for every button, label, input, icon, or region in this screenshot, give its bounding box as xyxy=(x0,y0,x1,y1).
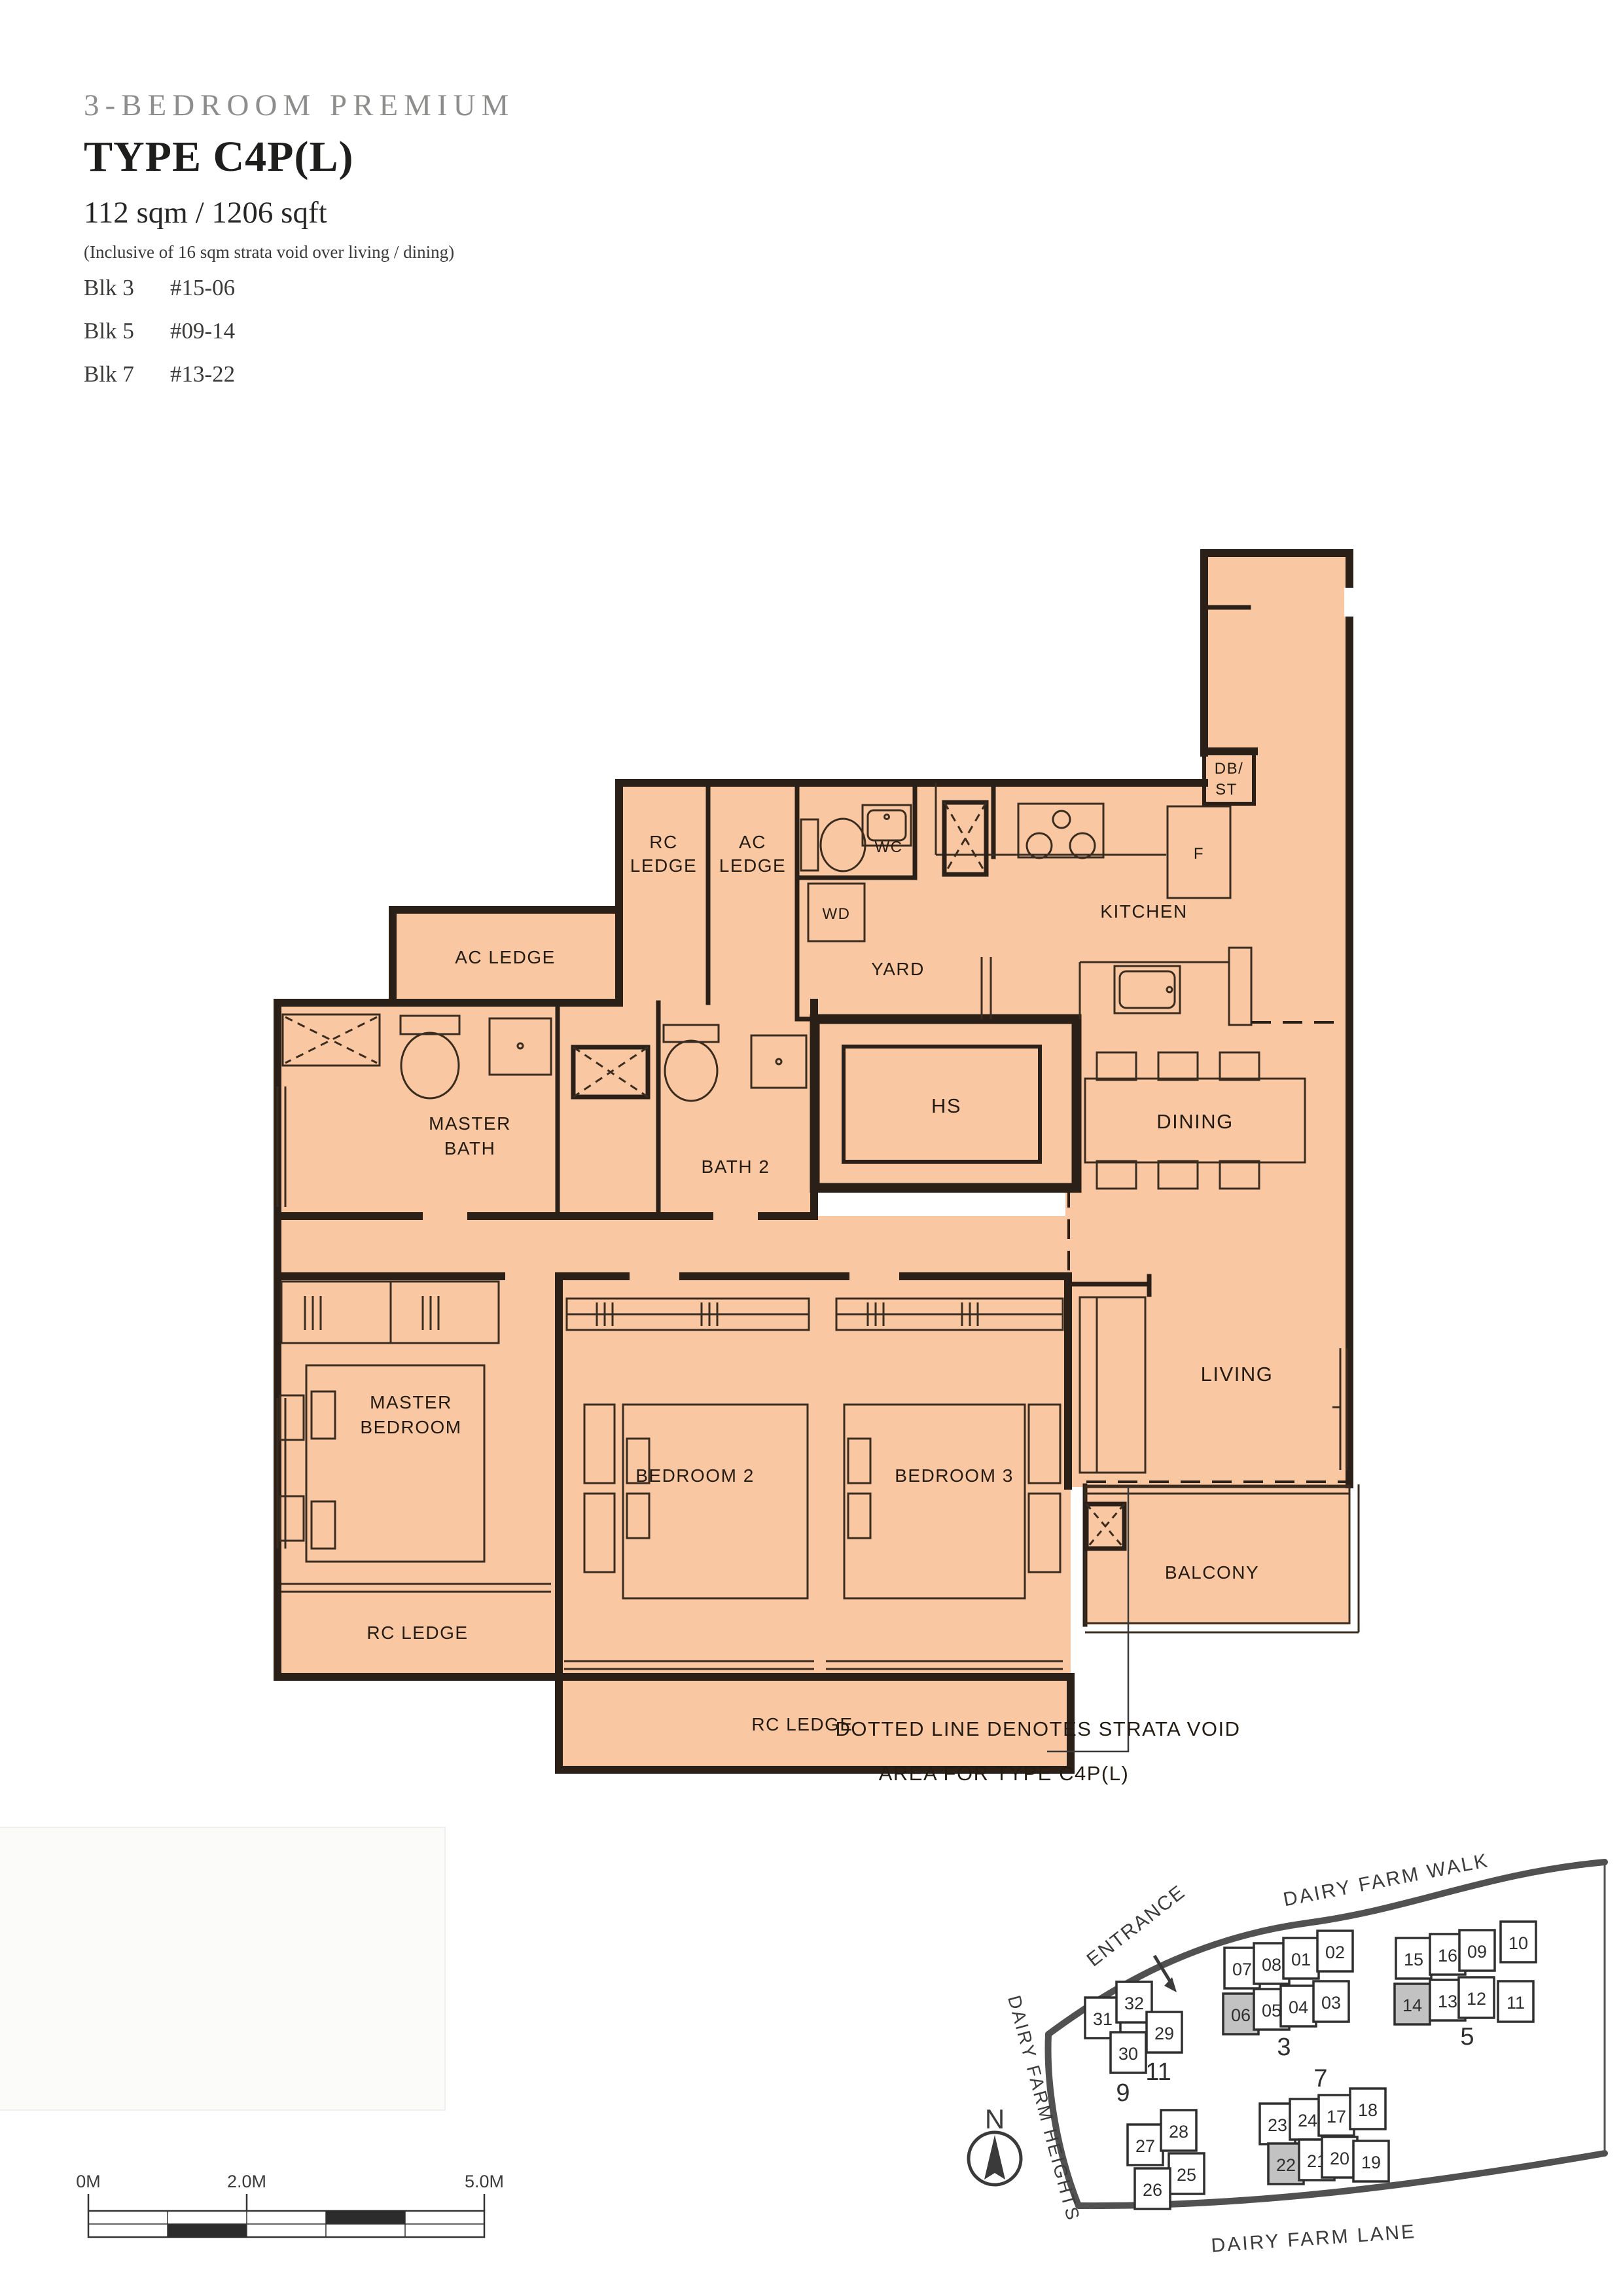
unit-number: 04 xyxy=(1289,1998,1308,2017)
room-label-bedroom2: BEDROOM 2 xyxy=(635,1465,755,1486)
site-block-9: 27 28 25 26 9 xyxy=(1116,2079,1204,2209)
room-label-ac-ledge-box: AC LEDGE xyxy=(455,947,556,967)
room-label-balcony: BALCONY xyxy=(1165,1562,1259,1583)
north-indicator: N xyxy=(969,2104,1021,2185)
scale-black-segment xyxy=(326,2211,405,2224)
scale-black-segment xyxy=(168,2224,247,2237)
sofa xyxy=(1080,1297,1145,1473)
room-label-master-bath: MASTER xyxy=(429,1113,511,1134)
unit-number: 01 xyxy=(1291,1950,1311,1969)
unit-number: 31 xyxy=(1093,2009,1113,2029)
unit-number: 14 xyxy=(1402,1996,1422,2015)
unit-number: 19 xyxy=(1361,2153,1381,2172)
block-number: 5 xyxy=(1460,2023,1474,2051)
room-label-rc-ledge: RC xyxy=(649,832,677,852)
scale-bar: 0M 2.0M 5.0M xyxy=(76,2172,504,2237)
room-label-wc: WC xyxy=(875,838,903,856)
block-number: 11 xyxy=(1145,2058,1171,2086)
block-number: 7 xyxy=(1313,2065,1327,2092)
scale-label-0m: 0M xyxy=(76,2172,101,2191)
unit-number: 16 xyxy=(1438,1946,1457,1965)
entrance-door-notch xyxy=(1344,588,1355,617)
unit-number: 07 xyxy=(1232,1960,1252,1979)
road-label-walk: DAIRY FARM WALK xyxy=(1281,1850,1491,1910)
bed xyxy=(623,1405,808,1598)
room-label-kitchen: KITCHEN xyxy=(1100,901,1187,922)
room-label-wd: WD xyxy=(823,905,851,923)
room-label-bedroom3: BEDROOM 3 xyxy=(895,1465,1014,1486)
unit-number: 17 xyxy=(1327,2107,1346,2126)
site-block-3: 07 08 01 02 06 05 04 03 3 xyxy=(1223,1931,1353,2061)
note-line2: AREA FOR TYPE C4P(L) xyxy=(879,1762,1130,1785)
room-label-master-bedroom: MASTER xyxy=(370,1392,452,1412)
room-label-db-st: DB/ xyxy=(1215,760,1244,778)
room-label-hs: HS xyxy=(931,1094,961,1117)
north-label: N xyxy=(985,2104,1005,2134)
unit-number: 18 xyxy=(1358,2100,1378,2120)
brochure-page: 3-BEDROOM PREMIUM TYPE C4P(L) 112 sqm / … xyxy=(0,0,1623,2296)
unit-number: 20 xyxy=(1330,2149,1349,2168)
unit-number: 10 xyxy=(1508,1933,1528,1953)
unit-number: 06 xyxy=(1231,2005,1251,2025)
site-plan: DAIRY FARM WALK DAIRY FARM LANE DAIRY FA… xyxy=(969,1850,1605,2257)
unit-number: 25 xyxy=(1177,2165,1196,2185)
unit-number: 12 xyxy=(1467,1989,1486,2009)
blank-panel xyxy=(0,1827,445,2110)
block-number: 9 xyxy=(1116,2079,1130,2107)
page-graphics: RC LEDGE AC LEDGE AC LEDGE WC WD YARD KI… xyxy=(0,0,1623,2296)
entrance-arrowhead xyxy=(1164,1977,1177,1992)
room-label-master-bath: BATH xyxy=(444,1138,496,1158)
room-label-rc-ledge: LEDGE xyxy=(630,855,697,876)
unit-number: 09 xyxy=(1467,1942,1487,1962)
room-label-master-bedroom: BEDROOM xyxy=(360,1417,461,1437)
unit-number: 32 xyxy=(1124,1994,1144,2013)
block-number: 3 xyxy=(1277,2034,1291,2061)
site-block-7: 23 24 17 18 22 21 20 19 7 xyxy=(1260,2065,1389,2184)
floor-plan: RC LEDGE AC LEDGE AC LEDGE WC WD YARD KI… xyxy=(277,553,1359,1770)
site-block-11: 31 32 29 30 11 xyxy=(1085,1982,1182,2086)
unit-number: 13 xyxy=(1438,1992,1457,2011)
scale-label-5m: 5.0M xyxy=(465,2172,504,2191)
room-label-fridge: F xyxy=(1194,845,1204,863)
room-label-living: LIVING xyxy=(1201,1363,1274,1386)
unit-number: 24 xyxy=(1298,2111,1317,2130)
room-label-ac-ledge: LEDGE xyxy=(719,855,786,876)
unit-number: 29 xyxy=(1154,2024,1174,2043)
unit-number: 11 xyxy=(1507,1993,1525,2013)
unit-number: 15 xyxy=(1404,1950,1423,1969)
room-label-yard: YARD xyxy=(871,959,925,979)
north-needle xyxy=(984,2135,1005,2179)
unit-number: 28 xyxy=(1169,2122,1188,2142)
unit-number: 02 xyxy=(1325,1943,1345,1962)
road-label-heights: DAIRY FARM HEIGHTS xyxy=(1004,1993,1084,2223)
room-label-bath2: BATH 2 xyxy=(702,1157,770,1177)
note-line1: DOTTED LINE DENOTES STRATA VOID xyxy=(836,1717,1241,1740)
room-label-db-st: ST xyxy=(1215,781,1238,798)
room-label-dining: DINING xyxy=(1156,1110,1234,1133)
unit-number: 08 xyxy=(1262,1955,1281,1975)
room-label-ac-ledge: AC xyxy=(739,832,766,852)
road-label-lane: DAIRY FARM LANE xyxy=(1211,2221,1418,2257)
scale-label-2m: 2.0M xyxy=(227,2172,266,2191)
unit-number: 23 xyxy=(1268,2115,1287,2135)
room-label-rc-ledge-left: RC LEDGE xyxy=(366,1623,468,1643)
unit-number: 03 xyxy=(1321,1993,1341,2013)
unit-number: 30 xyxy=(1118,2044,1138,2064)
unit-number: 26 xyxy=(1143,2180,1162,2200)
unit-number: 27 xyxy=(1135,2136,1155,2156)
unit-number: 05 xyxy=(1262,2001,1281,2020)
site-block-5: 15 16 09 10 14 13 12 11 5 xyxy=(1395,1922,1536,2051)
unit-number: 22 xyxy=(1276,2155,1296,2175)
